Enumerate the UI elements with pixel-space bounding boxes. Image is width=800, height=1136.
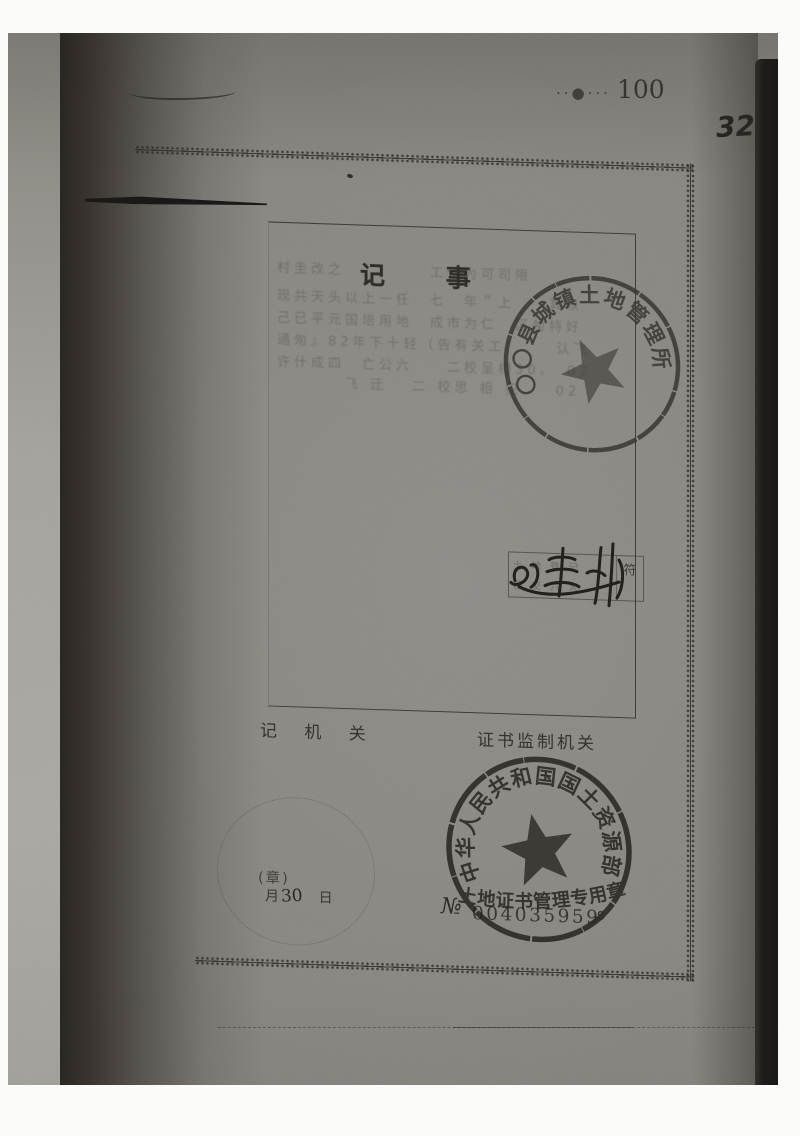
paper-sheet: ··●···100 32 记 事 村圭改之 工任为可司限 现共天头以上一任 七 …	[8, 33, 778, 1085]
scanned-certificate-page: ··●···100 32 记 事 村圭改之 工任为可司限 现共天头以上一任 七 …	[0, 0, 800, 1136]
paper-grain	[8, 33, 778, 1085]
